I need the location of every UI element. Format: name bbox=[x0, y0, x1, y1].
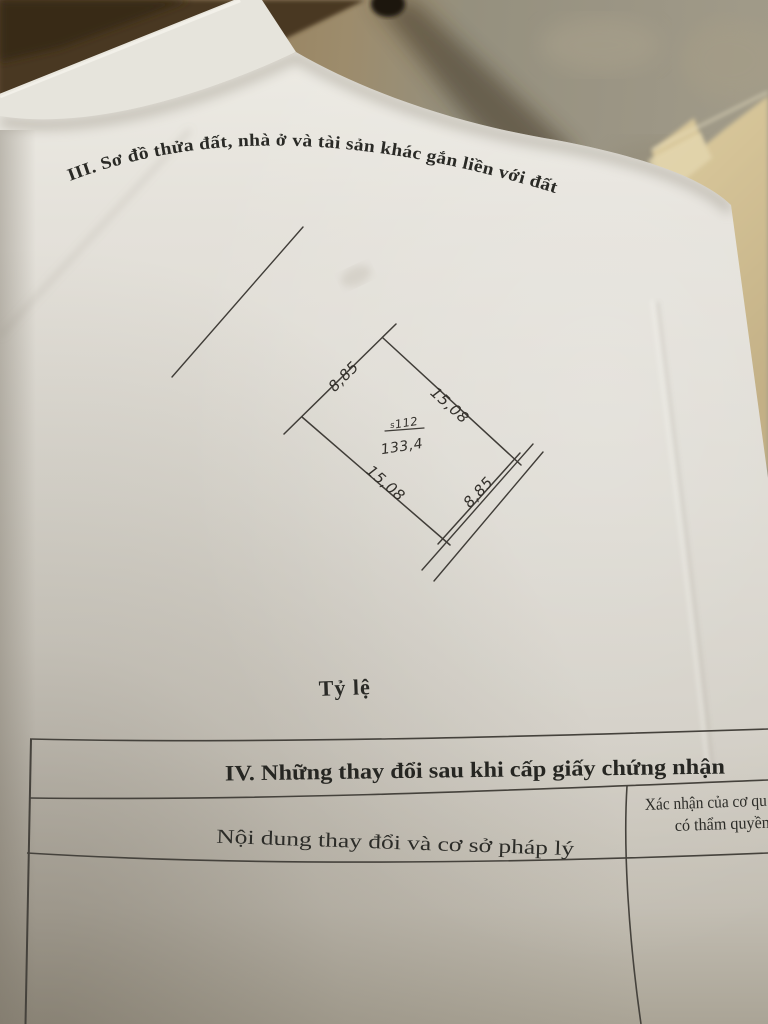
document-scene: III. Sơ đồ thửa đất, nhà ở và tài sản kh… bbox=[0, 0, 768, 1024]
page-left-edge-shadow bbox=[0, 130, 36, 1024]
photo-of-land-certificate: III. Sơ đồ thửa đất, nhà ở và tài sản kh… bbox=[0, 0, 768, 1024]
column-header-right-line2: có thẩm quyền bbox=[674, 813, 768, 835]
scale-label: Tỷ lệ bbox=[318, 674, 371, 701]
floor-highlight bbox=[540, 17, 660, 73]
